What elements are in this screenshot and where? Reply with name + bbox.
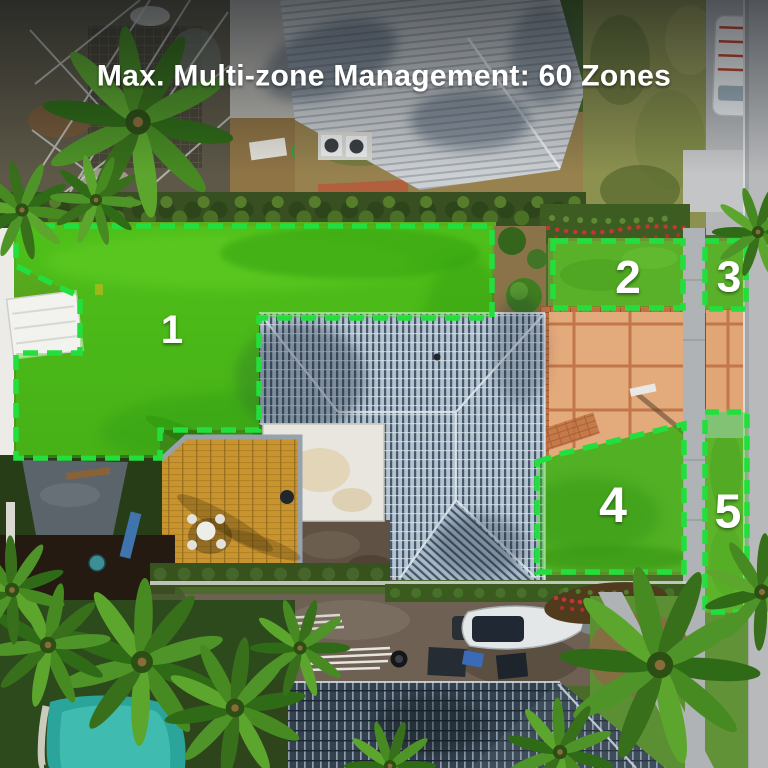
zone-4-label: 4 xyxy=(599,477,627,533)
zone-2-region: 2 xyxy=(553,241,683,308)
garden-shed xyxy=(7,291,84,359)
marketing-aerial-image: 1 2 3 4 5 Max. M xyxy=(0,0,768,768)
crate xyxy=(496,652,528,679)
roof-vent xyxy=(434,354,441,361)
crate xyxy=(427,647,466,677)
zone-1-label: 1 xyxy=(161,308,183,352)
zone-5-label: 5 xyxy=(715,486,742,539)
zone-3-label: 3 xyxy=(717,253,741,302)
grill xyxy=(280,490,294,504)
aerial-photo: 1 2 3 4 5 Max. M xyxy=(0,0,768,768)
headline-text: Max. Multi-zone Management: 60 Zones xyxy=(97,60,671,93)
zone-2-label: 2 xyxy=(615,251,641,303)
